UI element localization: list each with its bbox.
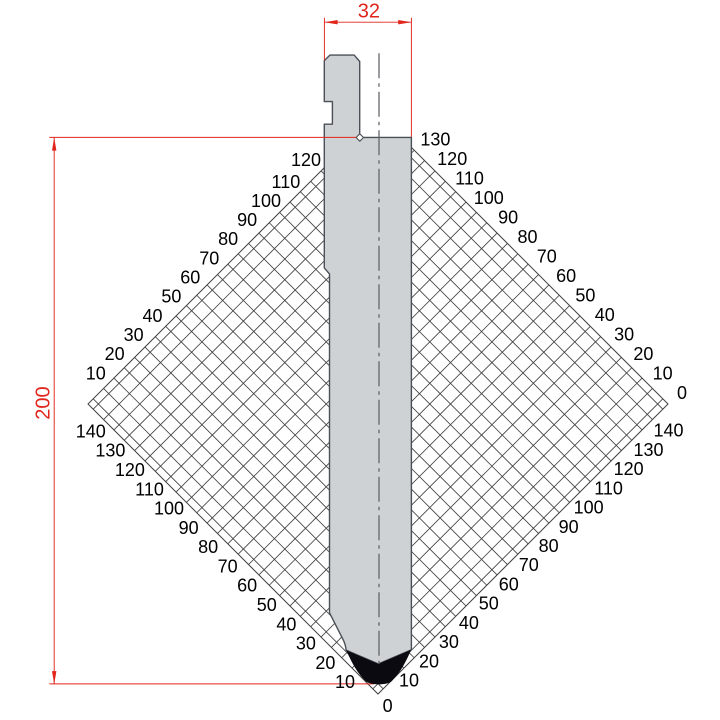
svg-text:30: 30 [124,325,144,345]
svg-text:60: 60 [499,575,519,595]
svg-text:20: 20 [419,651,439,671]
svg-text:70: 70 [218,556,238,576]
svg-text:32: 32 [358,1,380,23]
svg-text:10: 10 [399,671,419,691]
svg-text:130: 130 [420,130,450,150]
svg-text:100: 100 [154,499,184,519]
svg-text:100: 100 [474,188,504,208]
svg-text:40: 40 [459,613,479,633]
svg-text:110: 110 [272,172,301,192]
svg-text:80: 80 [198,537,218,557]
svg-text:70: 70 [519,555,539,575]
svg-text:30: 30 [296,634,316,654]
svg-text:40: 40 [142,306,162,326]
svg-text:110: 110 [594,478,623,498]
svg-text:80: 80 [218,229,238,249]
svg-text:60: 60 [180,268,200,288]
svg-text:90: 90 [237,210,257,230]
svg-text:30: 30 [614,325,634,345]
svg-text:50: 50 [257,595,277,615]
svg-text:50: 50 [575,286,595,306]
svg-text:80: 80 [539,536,559,556]
svg-text:70: 70 [199,248,219,268]
svg-text:0: 0 [383,696,393,716]
svg-text:30: 30 [439,632,459,652]
svg-text:60: 60 [556,266,576,286]
svg-text:20: 20 [633,344,653,364]
svg-text:90: 90 [179,518,199,538]
svg-text:40: 40 [276,614,296,634]
svg-text:0: 0 [677,383,687,403]
svg-text:20: 20 [315,653,335,673]
svg-text:120: 120 [291,150,321,170]
svg-text:90: 90 [559,517,579,537]
svg-text:100: 100 [574,498,604,518]
svg-text:140: 140 [76,422,106,442]
svg-text:60: 60 [237,576,257,596]
svg-text:110: 110 [455,169,484,189]
svg-text:100: 100 [251,191,281,211]
svg-text:120: 120 [614,459,644,479]
svg-text:20: 20 [105,344,125,364]
svg-text:50: 50 [479,594,499,614]
svg-text:80: 80 [517,227,537,247]
svg-text:70: 70 [537,247,557,267]
svg-text:140: 140 [653,421,683,441]
svg-text:10: 10 [86,363,106,383]
svg-text:120: 120 [115,460,145,480]
svg-text:50: 50 [161,287,181,307]
svg-text:130: 130 [633,440,663,460]
svg-text:130: 130 [95,441,125,461]
svg-text:120: 120 [437,149,467,169]
svg-text:90: 90 [498,208,518,228]
svg-text:110: 110 [135,479,164,499]
svg-text:40: 40 [595,305,615,325]
svg-text:10: 10 [653,364,673,384]
svg-text:10: 10 [335,672,355,692]
svg-text:200: 200 [32,386,54,419]
